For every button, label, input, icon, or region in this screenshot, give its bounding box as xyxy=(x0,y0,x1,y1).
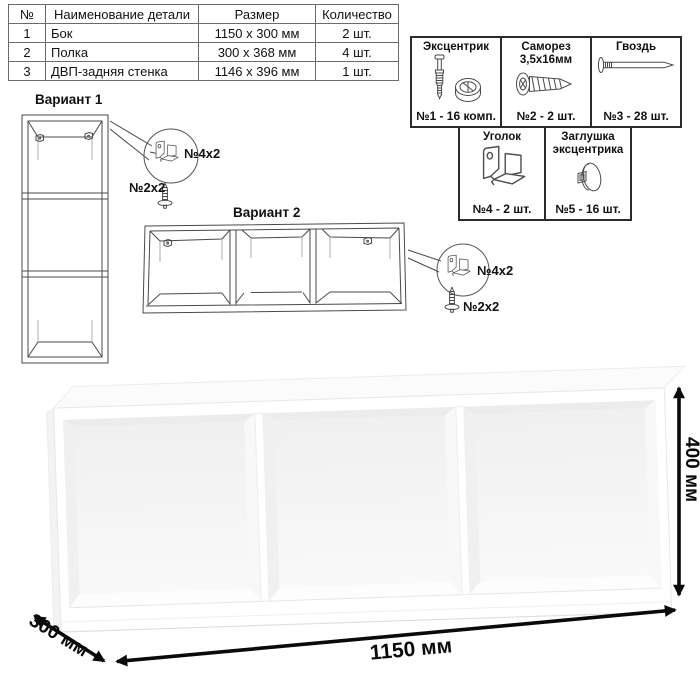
hardware-name: Заглушка эксцентрика xyxy=(546,128,630,157)
hardware-count: №5 - 16 шт. xyxy=(555,202,621,219)
part-qty: 4 шт. xyxy=(316,43,399,62)
header-name: Наименование детали xyxy=(46,5,199,24)
part-num: 2 xyxy=(9,43,46,62)
part-num: 1 xyxy=(9,24,46,43)
nail-icon xyxy=(596,54,676,76)
hardware-cell-cap: Заглушка эксцентрика №5 - 16 шт. xyxy=(544,126,632,221)
hardware-cell-bracket: Уголок №4 - 2 шт. xyxy=(458,126,546,221)
eccentric-cam-icon xyxy=(423,54,489,106)
header-size: Размер xyxy=(199,5,316,24)
hardware-cell-nail: Гвоздь №3 - 28 шт. xyxy=(590,36,682,128)
hardware-cell-screw: Саморез 3,5х16мм №2 - 2 шт. xyxy=(500,36,592,128)
header-num: № xyxy=(9,5,46,24)
part-size: 1146 x 396 мм xyxy=(199,62,316,81)
hardware-cell-eccentric: Эксцентрик № xyxy=(410,36,502,128)
hardware-box-row2: Уголок №4 - 2 шт. Заглушка эксцентрика №… xyxy=(458,126,632,221)
callout-leader xyxy=(408,250,441,272)
corner-bracket-icon xyxy=(476,144,528,188)
hardware-count: №3 - 28 шт. xyxy=(603,109,669,126)
part-qty: 2 шт. xyxy=(316,24,399,43)
shelf-3d-body xyxy=(46,366,693,632)
part-num: 3 xyxy=(9,62,46,81)
hardware-count: №1 - 16 комп. xyxy=(416,109,496,126)
shelf-render xyxy=(20,360,700,690)
part-size: 1150 x 300 мм xyxy=(199,24,316,43)
variant-1-bracket-label: №4х2 xyxy=(184,146,220,161)
hardware-name: Гвоздь xyxy=(614,38,658,54)
hardware-name: Уголок xyxy=(481,128,523,144)
hardware-box-row1: Эксцентрик № xyxy=(410,36,682,128)
variant-2-bracket-label: №4х2 xyxy=(477,263,513,278)
part-qty: 1 шт. xyxy=(316,62,399,81)
part-name: ДВП-задняя стенка xyxy=(46,62,199,81)
parts-table-header-row: № Наименование детали Размер Количество xyxy=(9,5,399,24)
hardware-count: №2 - 2 шт. xyxy=(517,109,576,126)
corner-bracket-icon xyxy=(448,255,470,275)
hardware-name: Саморез 3,5х16мм xyxy=(502,38,590,67)
part-name: Бок xyxy=(46,24,199,43)
header-qty: Количество xyxy=(316,5,399,24)
screw-icon xyxy=(514,67,578,101)
part-name: Полка xyxy=(46,43,199,62)
variant-2-screw-label: №2х2 xyxy=(463,299,499,314)
variant-2-drawing xyxy=(140,213,510,328)
table-row: 1 Бок 1150 x 300 мм 2 шт. xyxy=(9,24,399,43)
variant-1-screw-label: №2х2 xyxy=(129,180,165,195)
table-row: 2 Полка 300 x 368 мм 4 шт. xyxy=(9,43,399,62)
part-size: 300 x 368 мм xyxy=(199,43,316,62)
table-row: 3 ДВП-задняя стенка 1146 x 396 мм 1 шт. xyxy=(9,62,399,81)
assembly-instruction-sheet: № Наименование детали Размер Количество … xyxy=(0,0,700,690)
corner-bracket-icon xyxy=(156,141,178,161)
cam-cap-icon xyxy=(568,157,608,197)
hardware-name: Эксцентрик xyxy=(421,38,491,54)
callout-leader xyxy=(110,121,159,160)
parts-table: № Наименование детали Размер Количество … xyxy=(8,4,399,81)
height-dimension-label: 400 мм xyxy=(680,437,700,502)
